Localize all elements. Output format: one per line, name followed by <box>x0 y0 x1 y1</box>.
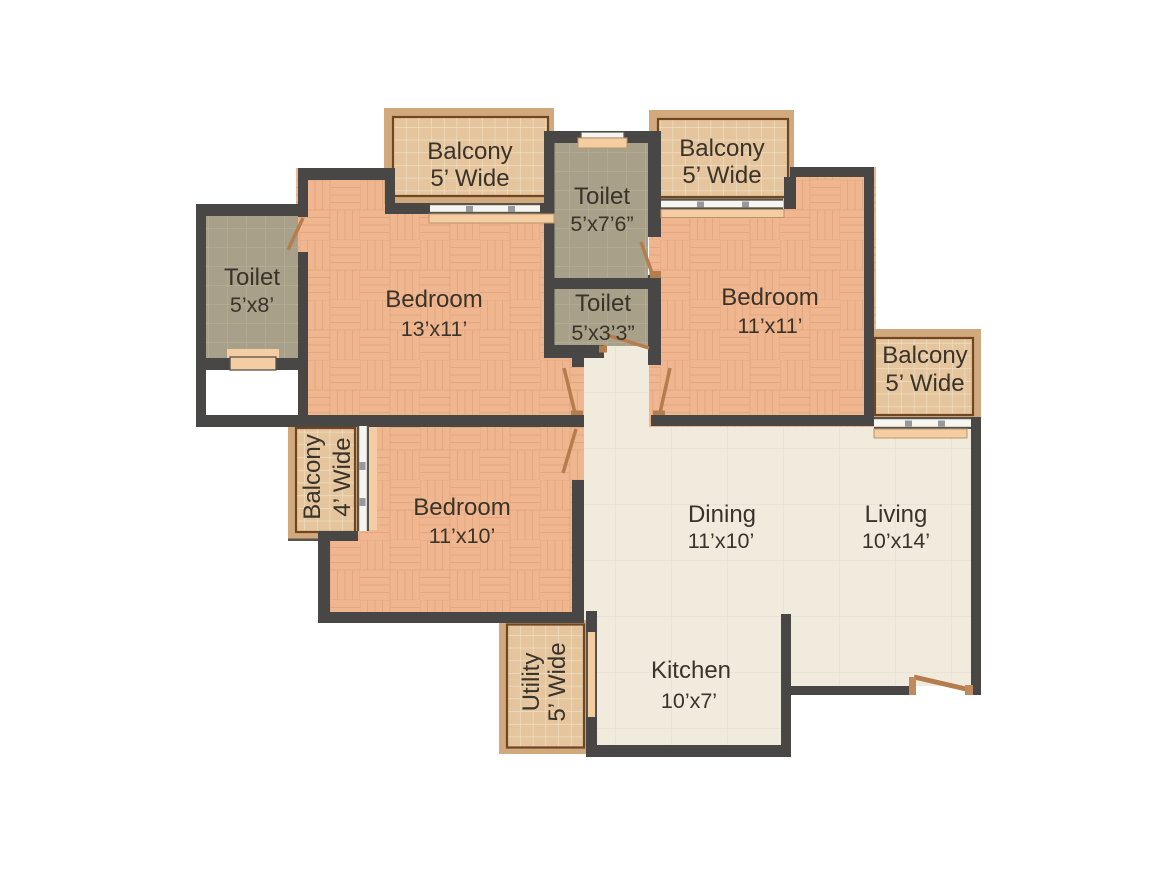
svg-text:5’x7’6”: 5’x7’6” <box>570 212 633 236</box>
svg-text:Bedroom: Bedroom <box>413 494 510 521</box>
svg-text:Dining: Dining <box>688 501 756 528</box>
svg-text:5’x8’: 5’x8’ <box>230 293 274 317</box>
svg-text:5’ Wide: 5’ Wide <box>430 165 509 192</box>
svg-text:Balcony: Balcony <box>427 138 512 165</box>
svg-text:4’ Wide: 4’ Wide <box>329 437 356 516</box>
svg-text:5’ Wide: 5’ Wide <box>544 642 571 721</box>
svg-text:Bedroom: Bedroom <box>721 284 818 311</box>
svg-text:Living: Living <box>865 501 928 528</box>
svg-text:Balcony: Balcony <box>679 135 764 162</box>
svg-text:10’x14’: 10’x14’ <box>862 529 930 553</box>
svg-text:Kitchen: Kitchen <box>651 657 731 684</box>
svg-text:5’ Wide: 5’ Wide <box>682 162 761 189</box>
svg-text:Balcony: Balcony <box>299 434 326 519</box>
svg-text:11’x10’: 11’x10’ <box>429 524 496 548</box>
svg-text:Toilet: Toilet <box>224 264 280 291</box>
svg-text:5’x3’3”: 5’x3’3” <box>571 321 634 345</box>
svg-text:13’x11’: 13’x11’ <box>401 317 468 341</box>
svg-text:10’x7’: 10’x7’ <box>661 689 717 713</box>
svg-text:11’x10’: 11’x10’ <box>688 529 755 553</box>
svg-text:5’ Wide: 5’ Wide <box>885 370 964 397</box>
svg-text:Bedroom: Bedroom <box>385 286 482 313</box>
svg-text:Balcony: Balcony <box>882 342 967 369</box>
svg-text:Toilet: Toilet <box>574 183 630 210</box>
svg-text:Utility: Utility <box>518 653 545 712</box>
svg-text:Toilet: Toilet <box>575 290 631 317</box>
svg-text:11’x11’: 11’x11’ <box>738 314 803 338</box>
